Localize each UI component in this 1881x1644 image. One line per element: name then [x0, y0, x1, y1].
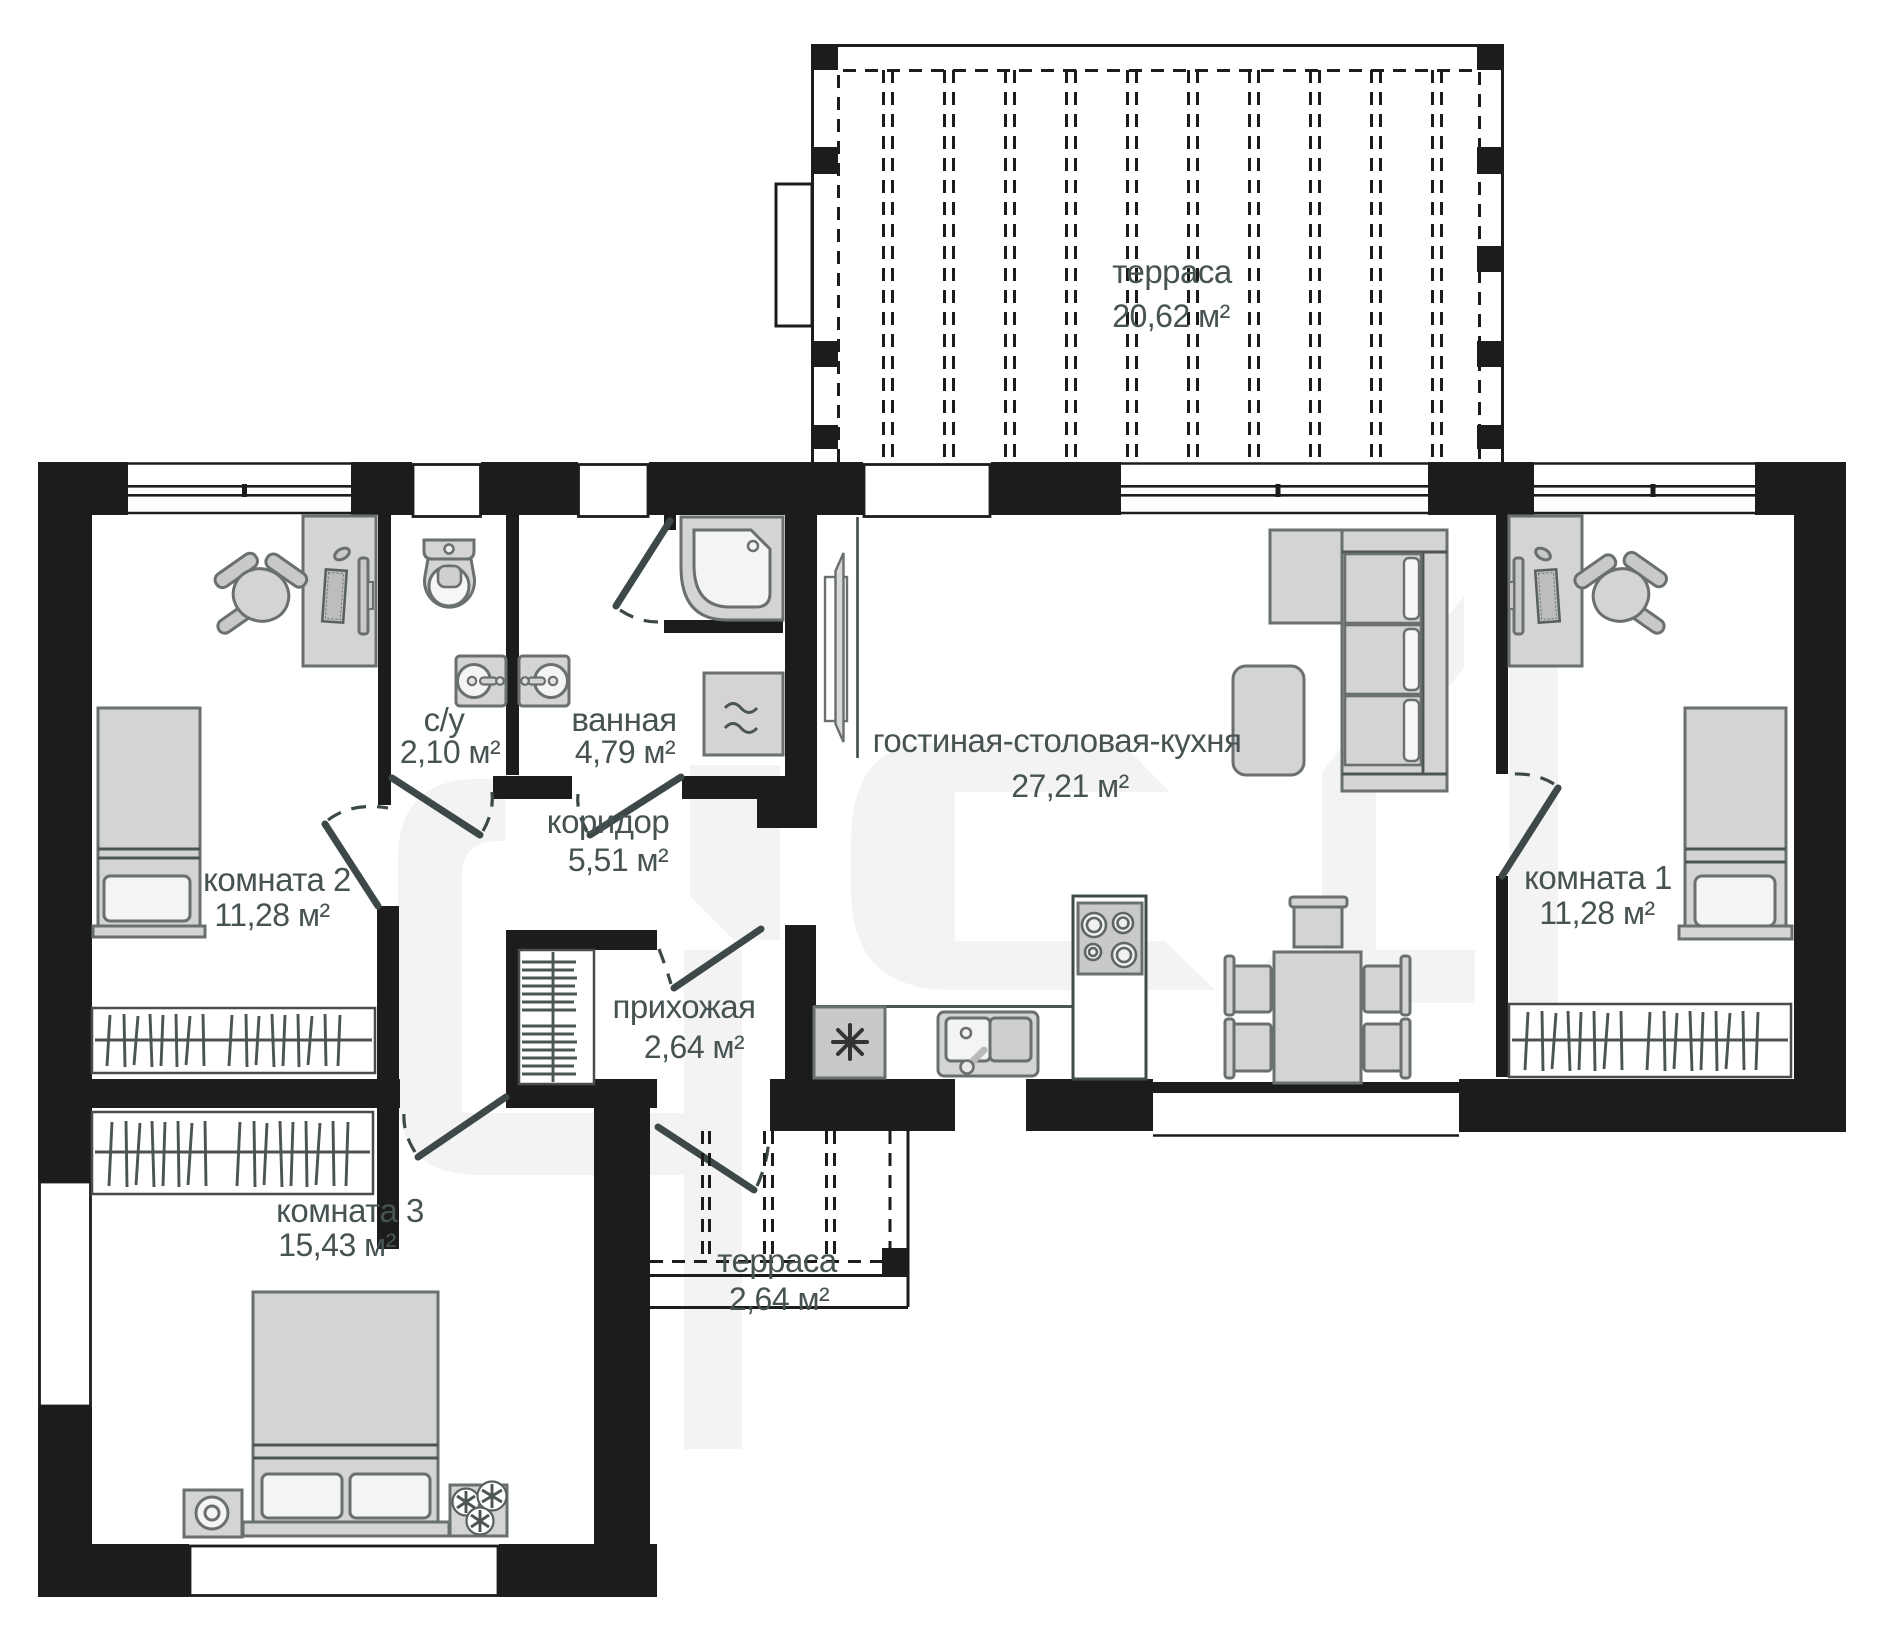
svg-text:2,64 м²: 2,64 м² [644, 1029, 745, 1065]
svg-text:ванная: ванная [571, 701, 676, 738]
svg-text:гостиная-столовая-кухня: гостиная-столовая-кухня [873, 722, 1242, 759]
svg-text:4,79 м²: 4,79 м² [575, 734, 676, 770]
svg-text:с/у: с/у [424, 701, 466, 738]
svg-text:11,28 м²: 11,28 м² [1539, 895, 1655, 931]
svg-text:2,64 м²: 2,64 м² [729, 1281, 830, 1317]
svg-text:2,10 м²: 2,10 м² [400, 734, 501, 770]
svg-text:коридор: коридор [547, 803, 669, 840]
svg-text:комната 2: комната 2 [203, 861, 351, 898]
svg-text:комната 1: комната 1 [1524, 859, 1672, 896]
svg-text:терраса: терраса [717, 1242, 838, 1279]
svg-text:20,62 м²: 20,62 м² [1112, 298, 1230, 334]
svg-text:11,28 м²: 11,28 м² [214, 897, 330, 933]
svg-text:5,51 м²: 5,51 м² [568, 842, 669, 878]
svg-text:прихожая: прихожая [612, 988, 755, 1025]
svg-text:15,43 м²: 15,43 м² [278, 1227, 396, 1263]
svg-text:терраса: терраса [1112, 253, 1233, 290]
svg-text:27,21 м²: 27,21 м² [1011, 768, 1129, 804]
svg-text:комната 3: комната 3 [276, 1192, 424, 1229]
